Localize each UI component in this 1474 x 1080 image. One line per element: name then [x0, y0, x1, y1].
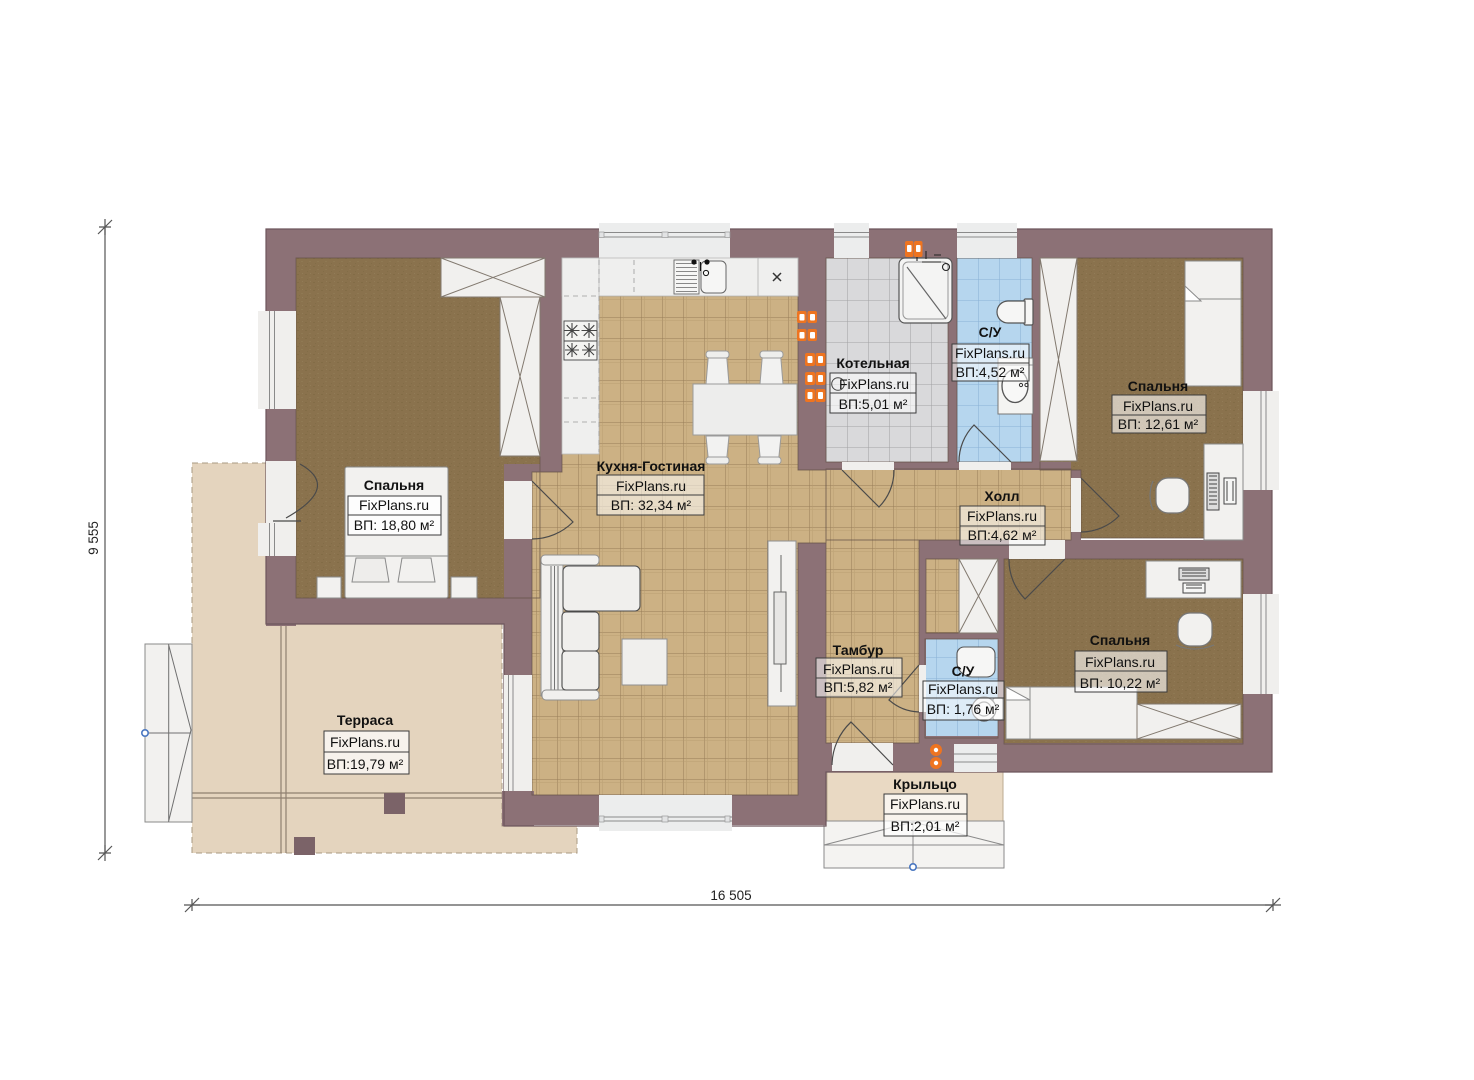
svg-text:ВП:5,82 м²: ВП:5,82 м²	[824, 679, 893, 695]
svg-text:ВП: 32,34 м²: ВП: 32,34 м²	[611, 497, 692, 513]
svg-text:16 505: 16 505	[710, 888, 751, 903]
svg-text:FixPlans.ru: FixPlans.ru	[1085, 654, 1155, 670]
svg-text:ВП:4,62 м²: ВП:4,62 м²	[968, 527, 1037, 543]
svg-text:Спальня: Спальня	[1090, 632, 1150, 648]
svg-text:С/У: С/У	[979, 324, 1002, 340]
svg-text:Холл: Холл	[984, 488, 1019, 504]
svg-text:Крыльцо: Крыльцо	[893, 776, 957, 792]
svg-text:ВП:19,79 м²: ВП:19,79 м²	[327, 756, 404, 772]
svg-text:FixPlans.ru: FixPlans.ru	[928, 681, 998, 697]
svg-text:Терраса: Терраса	[337, 712, 393, 728]
svg-text:Котельная: Котельная	[836, 355, 909, 371]
svg-text:ВП:4,52 м²: ВП:4,52 м²	[956, 364, 1025, 380]
svg-text:FixPlans.ru: FixPlans.ru	[890, 796, 960, 812]
svg-text:ВП:5,01 м²: ВП:5,01 м²	[839, 396, 908, 412]
svg-text:FixPlans.ru: FixPlans.ru	[955, 345, 1025, 361]
svg-text:Спальня: Спальня	[364, 477, 424, 493]
svg-text:FixPlans.ru: FixPlans.ru	[359, 497, 429, 513]
svg-text:С/У: С/У	[952, 663, 975, 679]
svg-text:FixPlans.ru: FixPlans.ru	[967, 508, 1037, 524]
svg-text:Тамбур: Тамбур	[833, 642, 884, 658]
svg-text:FixPlans.ru: FixPlans.ru	[823, 661, 893, 677]
svg-text:FixPlans.ru: FixPlans.ru	[1123, 398, 1193, 414]
svg-text:ВП:2,01 м²: ВП:2,01 м²	[891, 818, 960, 834]
svg-text:FixPlans.ru: FixPlans.ru	[330, 734, 400, 750]
svg-text:Кухня-Гостиная: Кухня-Гостиная	[597, 458, 706, 474]
svg-text:ВП: 12,61 м²: ВП: 12,61 м²	[1118, 416, 1199, 432]
svg-text:ВП: 1,76 м²: ВП: 1,76 м²	[927, 701, 1000, 717]
svg-text:ВП: 18,80 м²: ВП: 18,80 м²	[354, 517, 435, 533]
svg-text:Спальня: Спальня	[1128, 378, 1188, 394]
svg-text:FixPlans.ru: FixPlans.ru	[616, 478, 686, 494]
svg-text:ВП: 10,22 м²: ВП: 10,22 м²	[1080, 675, 1161, 691]
svg-text:9 555: 9 555	[86, 521, 101, 555]
svg-text:FixPlans.ru: FixPlans.ru	[839, 376, 909, 392]
